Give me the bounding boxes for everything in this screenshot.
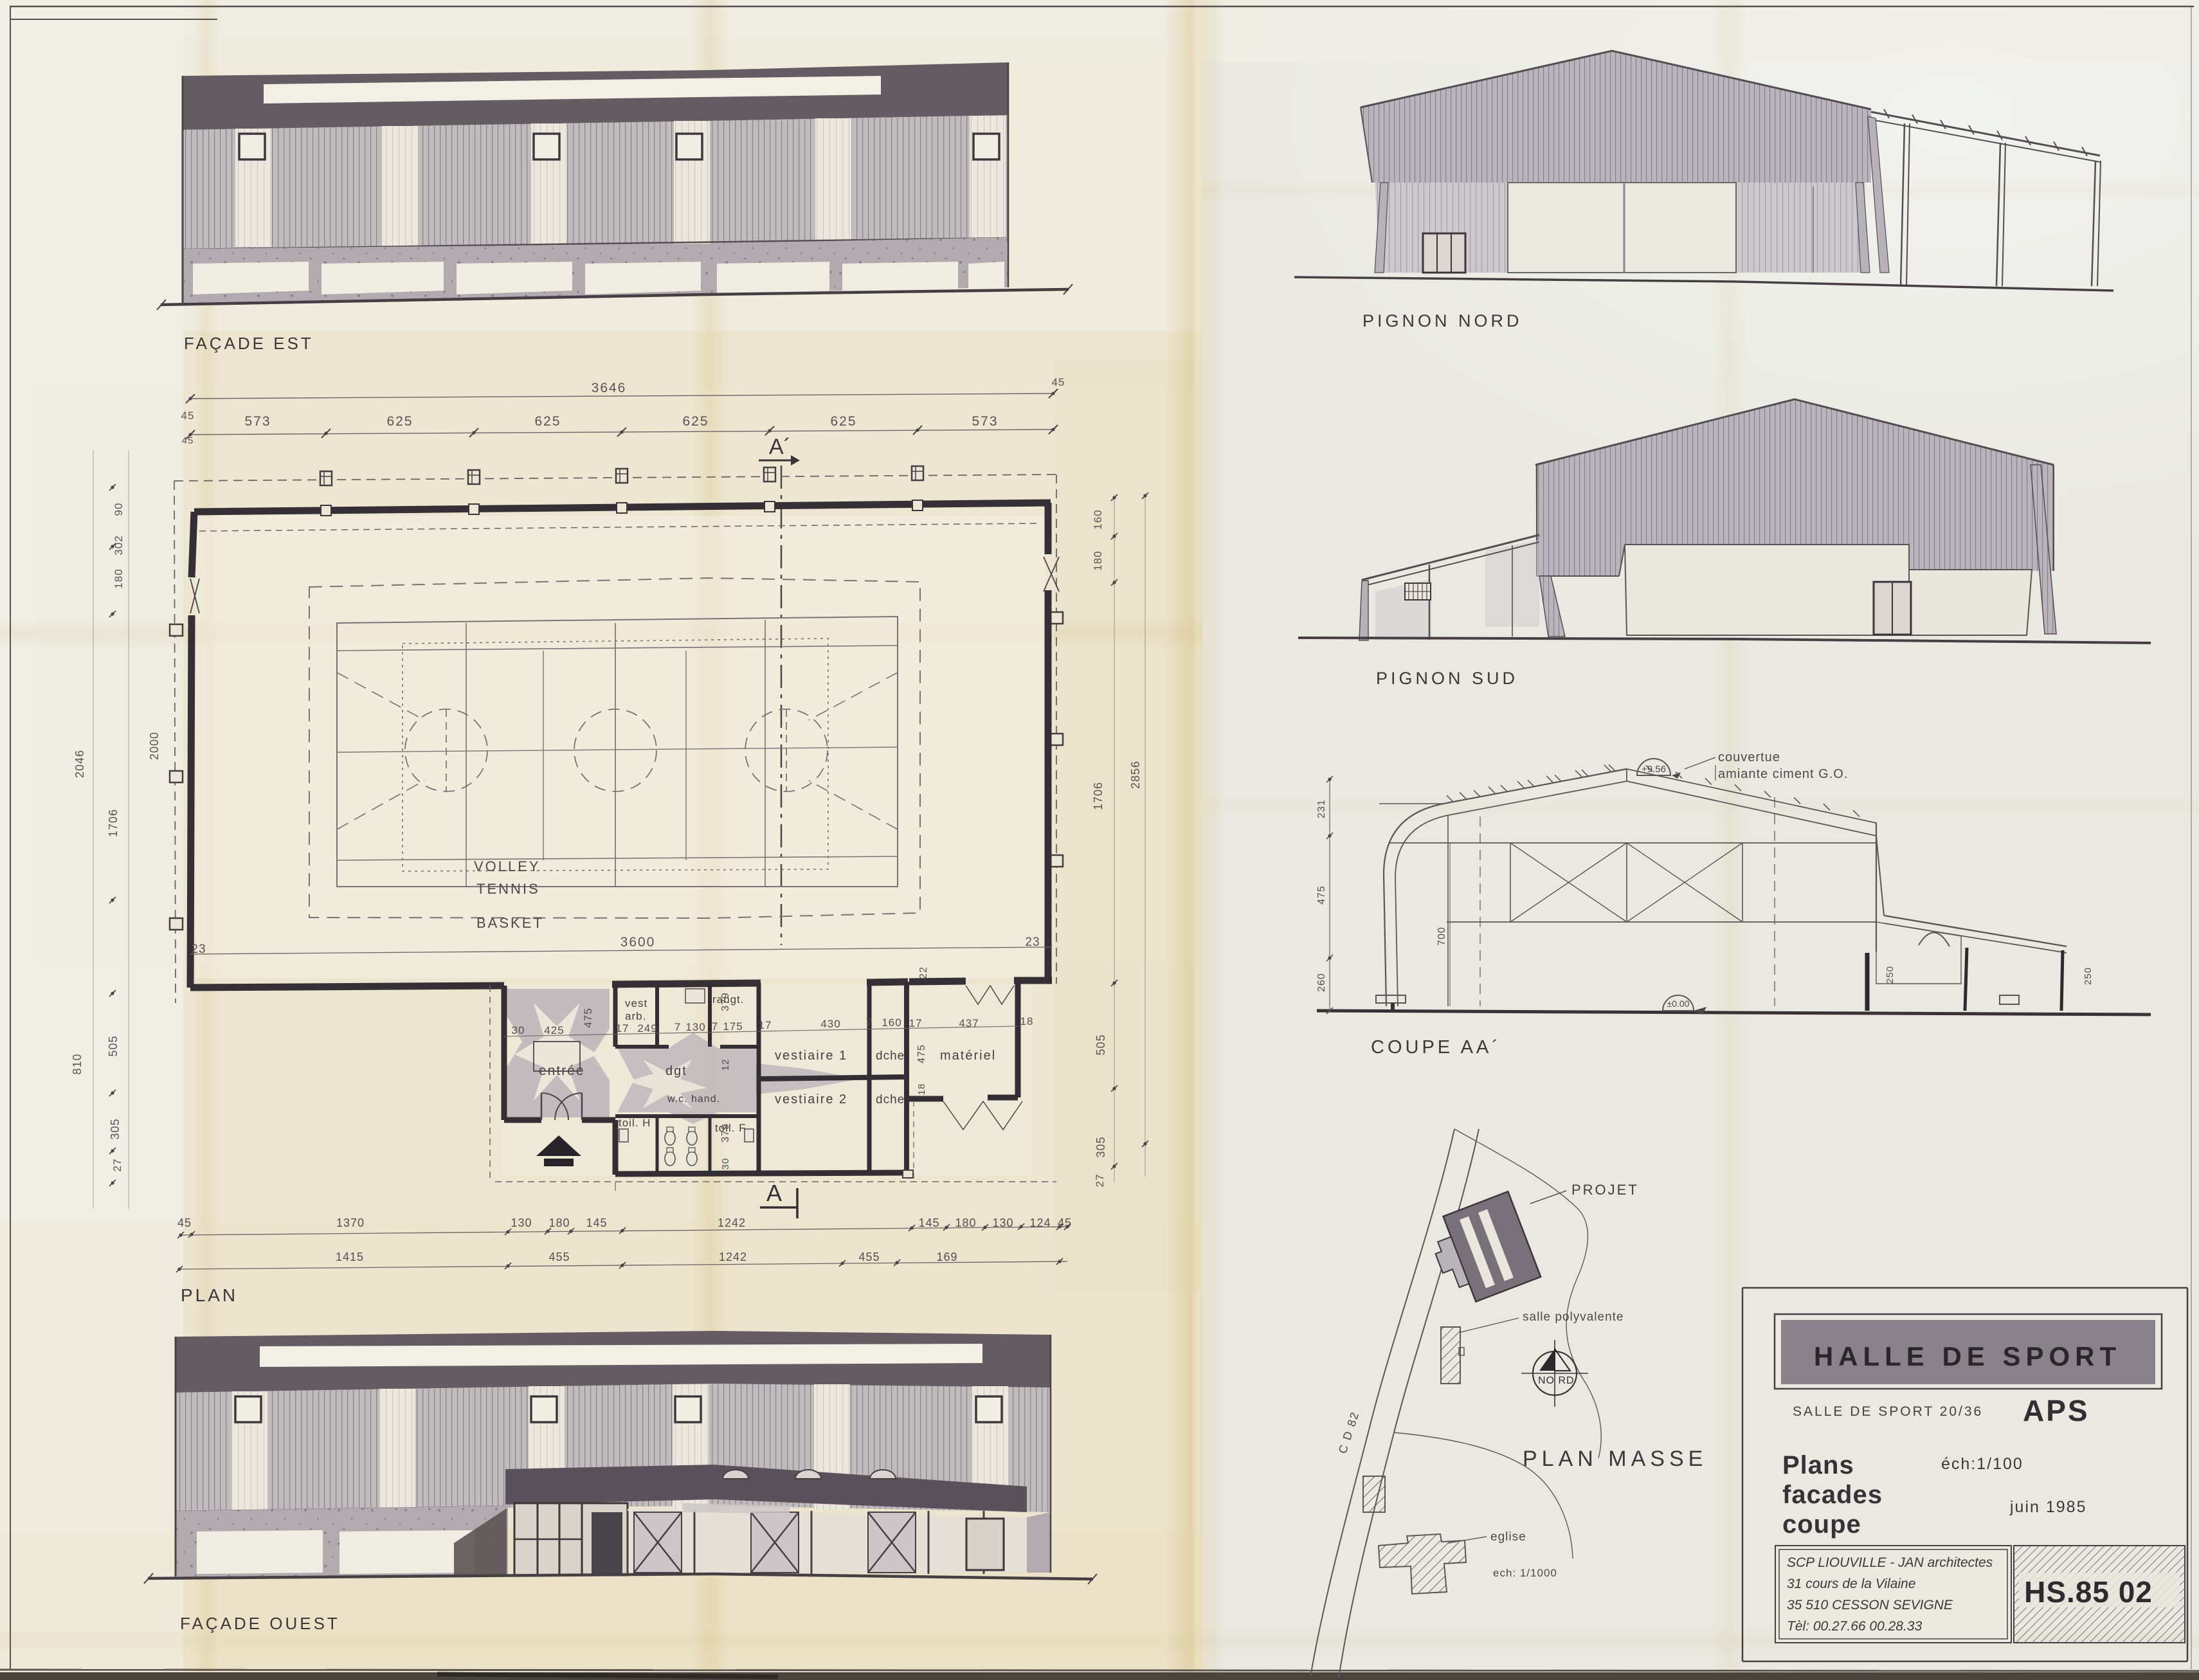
svg-text:±0.00: ±0.00 [1667,998,1690,1009]
svg-text:625: 625 [534,414,561,429]
svg-text:2000: 2000 [148,732,161,760]
svg-text:145: 145 [586,1216,607,1229]
svg-text:45: 45 [177,1216,192,1229]
svg-text:dche: dche [876,1093,905,1106]
svg-text:PROJET: PROJET [1571,1182,1639,1198]
svg-text:w.c. hand.: w.c. hand. [667,1094,720,1105]
svg-text:+9.56: +9.56 [1642,764,1666,775]
svg-text:toil. H: toil. H [619,1117,651,1129]
svg-text:1242: 1242 [719,1251,747,1263]
svg-text:amiante ciment G.O.: amiante ciment G.O. [1718,767,1848,781]
svg-text:PIGNON NORD: PIGNON NORD [1362,311,1523,330]
svg-text:vestiaire 2: vestiaire 2 [775,1092,847,1106]
svg-text:Plans: Plans [1782,1451,1854,1479]
svg-text:180: 180 [955,1216,976,1229]
svg-text:BASKET: BASKET [476,915,544,931]
svg-text:169: 169 [936,1251,957,1263]
svg-text:260: 260 [1316,973,1327,992]
svg-text:1415: 1415 [336,1251,364,1263]
svg-text:TENNIS: TENNIS [476,881,540,897]
svg-text:18: 18 [1020,1015,1034,1027]
svg-text:1370: 1370 [336,1216,365,1229]
svg-text:130: 130 [511,1216,532,1229]
svg-text:379: 379 [720,1123,731,1143]
svg-text:coupe: coupe [1782,1510,1861,1539]
svg-text:7: 7 [712,1020,718,1033]
svg-text:231: 231 [1316,799,1327,818]
svg-text:NO RD: NO RD [1538,1375,1575,1386]
svg-text:35 510 CESSON SEVIGNE: 35 510 CESSON SEVIGNE [1787,1598,1953,1612]
svg-text:160: 160 [882,1016,901,1029]
svg-text:130: 130 [685,1021,705,1033]
svg-text:130: 130 [992,1216,1013,1229]
svg-text:249: 249 [637,1022,657,1034]
svg-text:455: 455 [548,1251,570,1263]
svg-text:30: 30 [512,1024,525,1036]
svg-text:175: 175 [723,1020,743,1033]
svg-text:VOLLEY: VOLLEY [474,858,541,874]
svg-text:17: 17 [759,1019,772,1031]
svg-text:couvertue: couvertue [1718,750,1780,764]
svg-text:HALLE DE SPORT: HALLE DE SPORT [1814,1341,2121,1371]
svg-text:250: 250 [1885,966,1896,984]
svg-text:31 cours de la Vilaine: 31 cours de la Vilaine [1787,1576,1915,1591]
svg-text:45: 45 [1052,376,1065,388]
svg-text:180: 180 [113,568,125,588]
svg-text:facades: facades [1782,1481,1883,1509]
svg-text:160: 160 [1092,509,1104,529]
svg-text:379: 379 [720,992,731,1011]
svg-text:7: 7 [866,1016,873,1029]
svg-text:PLAN: PLAN [181,1285,238,1305]
svg-text:salle polyvalente: salle polyvalente [1523,1310,1624,1324]
svg-text:625: 625 [830,414,856,429]
svg-text:145: 145 [918,1216,939,1229]
svg-text:18: 18 [916,1083,927,1096]
svg-text:vest: vest [625,997,647,1009]
svg-text:810: 810 [71,1053,84,1074]
svg-text:90: 90 [113,503,125,516]
svg-text:SALLE DE SPORT 20/36: SALLE DE SPORT 20/36 [1793,1404,1983,1419]
svg-text:1706: 1706 [1092,782,1105,810]
svg-text:2046: 2046 [73,750,86,778]
svg-text:573: 573 [244,414,271,429]
svg-text:APS: APS [2023,1394,2090,1427]
svg-text:475: 475 [582,1007,594,1027]
svg-text:180: 180 [1092,550,1104,570]
svg-text:HS.85 02: HS.85 02 [2024,1575,2153,1609]
svg-text:475: 475 [916,1044,927,1063]
svg-text:matériel: matériel [940,1049,996,1063]
svg-text:FAÇADE EST: FAÇADE EST [184,334,314,353]
svg-text:A: A [766,1180,782,1206]
svg-text:573: 573 [972,414,998,429]
svg-text:305: 305 [109,1118,122,1139]
svg-text:30: 30 [720,1158,731,1170]
svg-text:COUPE AA´: COUPE AA´ [1371,1037,1501,1058]
svg-text:455: 455 [858,1251,880,1263]
svg-text:3600: 3600 [620,935,656,950]
svg-text:625: 625 [386,414,413,429]
svg-text:180: 180 [548,1216,570,1229]
svg-text:éch:1/100: éch:1/100 [1941,1455,2023,1473]
svg-text:700: 700 [1436,926,1447,946]
svg-text:eglise: eglise [1490,1530,1526,1544]
svg-text:3646: 3646 [592,381,627,395]
svg-text:250: 250 [2083,967,2094,985]
svg-text:22: 22 [918,966,929,979]
svg-text:430: 430 [820,1018,840,1030]
svg-text:7: 7 [674,1021,681,1033]
svg-text:2856: 2856 [1129,761,1142,789]
svg-text:475: 475 [1316,885,1327,905]
svg-text:45: 45 [181,410,195,422]
svg-text:505: 505 [107,1035,120,1056]
svg-text:PLAN MASSE: PLAN MASSE [1523,1447,1707,1471]
svg-text:A´: A´ [769,435,791,459]
svg-text:625: 625 [682,414,709,429]
svg-text:12: 12 [720,1059,731,1071]
svg-text:dgt: dgt [665,1064,687,1078]
svg-text:305: 305 [1094,1136,1107,1157]
svg-text:27: 27 [111,1159,123,1172]
svg-text:FAÇADE OUEST: FAÇADE OUEST [180,1614,340,1633]
svg-text:arb.: arb. [625,1010,646,1022]
svg-text:17: 17 [909,1017,923,1029]
svg-text:ech: 1/1000: ech: 1/1000 [1493,1567,1557,1579]
svg-text:17: 17 [616,1022,629,1034]
svg-text:SCP LIOUVILLE - JAN architec: SCP LIOUVILLE - JAN architectes [1787,1555,1993,1570]
svg-text:505: 505 [1094,1034,1107,1055]
svg-text:PIGNON SUD: PIGNON SUD [1376,669,1518,688]
svg-text:1242: 1242 [718,1216,746,1229]
svg-text:27: 27 [1094,1174,1106,1188]
svg-text:124: 124 [1029,1216,1051,1229]
svg-text:45: 45 [182,435,194,446]
svg-text:Tèl: 00.27.66 00.28.33: Tèl: 00.27.66 00.28.33 [1787,1619,1922,1634]
svg-text:425: 425 [544,1024,564,1036]
svg-text:vestiaire 1: vestiaire 1 [775,1049,847,1063]
svg-text:juin 1985: juin 1985 [2009,1498,2086,1516]
svg-text:dche: dche [876,1049,905,1063]
svg-text:1706: 1706 [107,809,120,837]
